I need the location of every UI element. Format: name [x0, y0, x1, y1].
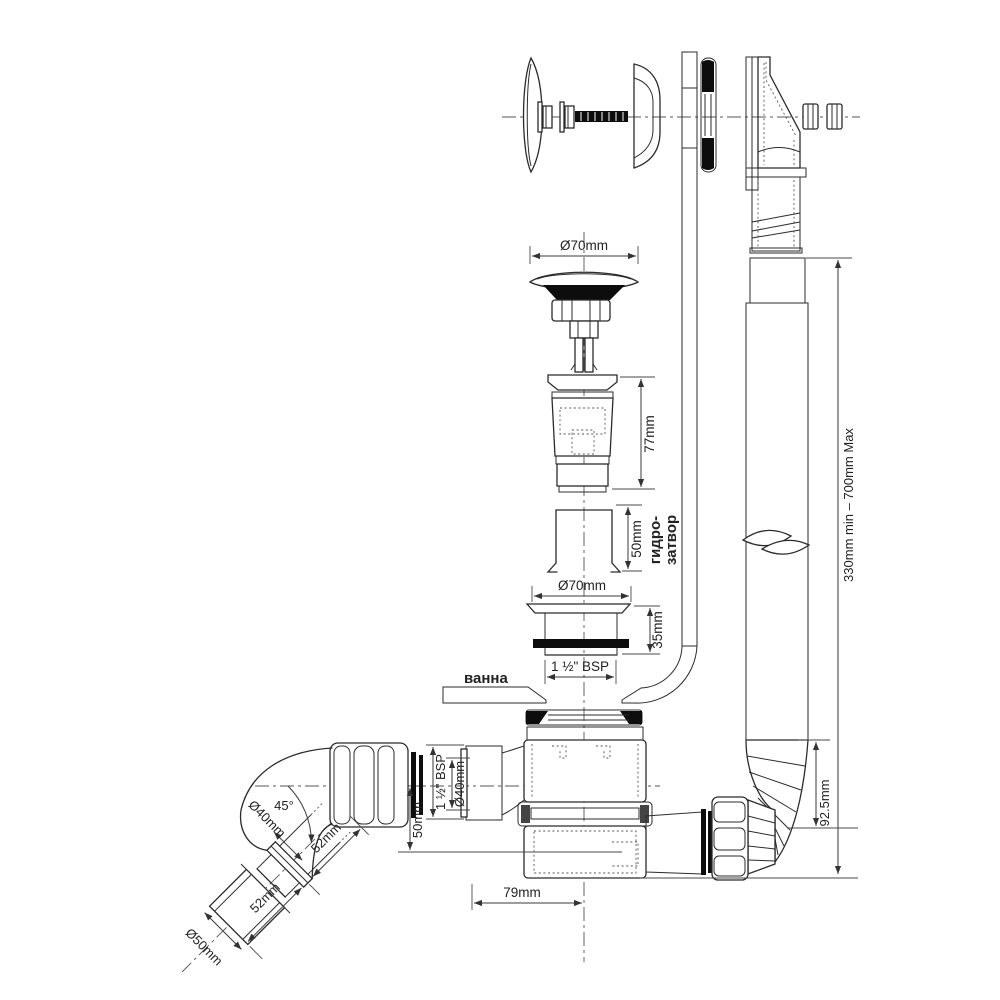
label-inlet-diameter: Ø40mm	[452, 761, 467, 807]
hose-end-fitting	[748, 800, 775, 874]
waste-flange	[527, 604, 630, 655]
label-plug-diameter: Ø70mm	[560, 238, 608, 253]
label-water-seal-name-1: гидро-	[647, 516, 664, 564]
dim-insert-height: 77mm	[612, 377, 657, 489]
trap-top-nut	[527, 727, 643, 740]
label-thread-size-top: 1 ½" BSP	[551, 659, 609, 674]
dim-flange-diameter: Ø70mm	[532, 578, 631, 602]
waste-insert	[548, 375, 617, 492]
label-thread-height: 35mm	[650, 611, 665, 649]
trap-union	[518, 802, 652, 826]
bath-bottom-left	[443, 687, 546, 703]
overflow-locking-nuts	[803, 104, 842, 129]
waste-seal-ring	[533, 639, 629, 648]
overflow-screw	[538, 102, 628, 132]
label-outlet-pipe-diameter: Ø50mm	[183, 925, 226, 968]
bath-waste-diagram: Ø70mm 77mm 50mm гидро- затвор Ø70mm 35mm…	[0, 0, 1000, 1000]
flexible-hose	[743, 258, 809, 874]
diagram-canvas: Ø70mm 77mm 50mm гидро- затвор Ø70mm 35mm…	[0, 0, 1000, 1000]
label-bath: ванна	[464, 670, 508, 687]
dim-thread-size-top: 1 ½" BSP	[545, 659, 616, 684]
label-inlet-depth: 50mm	[410, 802, 425, 838]
outlet-seal	[701, 809, 706, 875]
dim-inlet-diameter: Ø40mm	[446, 758, 470, 810]
label-hose-range: 330mm min – 700mm Max	[841, 428, 856, 582]
outlet-nut	[712, 797, 748, 880]
label-water-seal-height: 50mm	[629, 520, 644, 558]
label-trap-width: 79mm	[503, 885, 541, 900]
trap-inlet-thread	[461, 746, 524, 820]
label-hose-drop: 92.5mm	[817, 780, 832, 827]
elbow-nut	[330, 743, 408, 827]
overflow-cup-washer	[634, 64, 660, 168]
label-inlet-thread: 1 ½" BSP	[433, 754, 448, 810]
overflow-gasket	[701, 58, 716, 172]
plug-seal	[543, 285, 625, 300]
overflow-elbow-body	[746, 57, 806, 253]
dim-trap-width: 79mm	[472, 884, 582, 910]
label-insert-height: 77mm	[642, 415, 657, 453]
label-water-seal-name-2: затвор	[663, 515, 680, 565]
dim-water-seal: 50mm гидро- затвор	[616, 505, 680, 571]
trap-upper-body	[524, 740, 646, 802]
label-elbow-angle: 45°	[274, 798, 294, 813]
label-flange-diameter: Ø70mm	[558, 578, 606, 593]
bath-bottom-corner	[622, 646, 697, 703]
trap-outlet	[646, 812, 702, 874]
